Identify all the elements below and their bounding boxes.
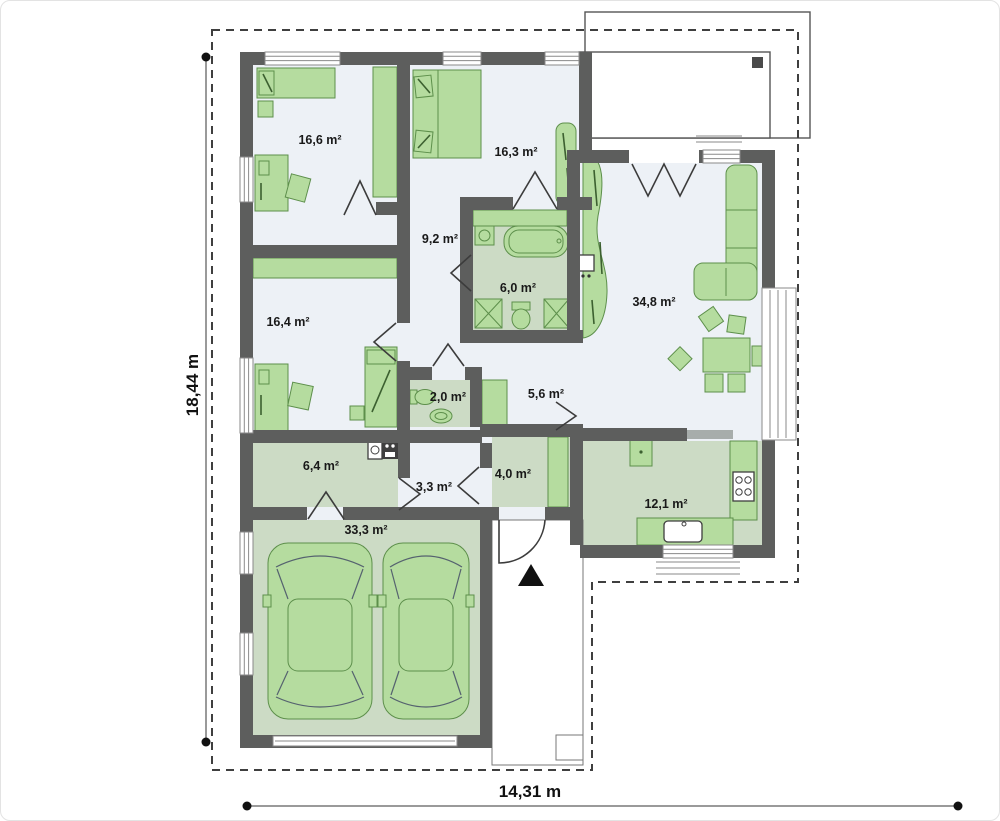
kitchen-sink-icon (664, 521, 702, 542)
car-icon (378, 543, 474, 719)
chair-icon (288, 382, 314, 410)
room-label-bedroom-2: 16,3 m² (494, 145, 537, 159)
room-label-corridor: 3,3 m² (416, 480, 452, 494)
floor-plan-page: 18,44 m 14,31 m (0, 0, 1000, 821)
room-label-entry: 4,0 m² (495, 467, 531, 481)
width-dimension-label: 14,31 m (499, 782, 561, 801)
dimension-bottom: 14,31 m (243, 782, 963, 811)
desk-icon (255, 364, 288, 434)
sink-icon (430, 409, 452, 423)
terrace-door-icon (762, 288, 796, 440)
wardrobe-icon (373, 67, 397, 197)
entrance-walkway (492, 520, 583, 765)
dimension-left: 18,44 m (183, 53, 211, 747)
utility-appliances (368, 441, 398, 459)
garage-cars (263, 543, 474, 719)
window-icon (240, 358, 253, 433)
room-label-wc: 2,0 m² (430, 390, 466, 404)
wardrobe-icon (482, 380, 507, 427)
sink-icon (475, 226, 494, 245)
washer-icon (368, 441, 382, 459)
chimney-icon (752, 57, 763, 68)
room-label-utility: 6,4 m² (303, 459, 339, 473)
room-label-bathroom: 6,0 m² (500, 281, 536, 295)
window-icon (240, 532, 253, 574)
room-label-kitchen: 12,1 m² (644, 497, 687, 511)
window-icon (443, 52, 481, 65)
room-label-hallway: 5,6 m² (528, 387, 564, 401)
hall-closet-icon (473, 210, 567, 226)
window-icon (240, 157, 253, 202)
window-icon (663, 545, 733, 558)
floor-plan: 18,44 m 14,31 m (0, 0, 1000, 821)
garage-door-icon (273, 736, 457, 746)
car-icon (263, 543, 377, 719)
room-label-bedroom-3: 16,4 m² (266, 315, 309, 329)
room-label-hall: 9,2 m² (422, 232, 458, 246)
fireplace-icon (578, 255, 594, 271)
window-icon (545, 52, 579, 65)
room-label-garage: 33,3 m² (344, 523, 387, 537)
window-icon (703, 150, 740, 163)
window-icon (265, 52, 340, 65)
desk-icon (255, 155, 288, 211)
window-icon (240, 633, 253, 675)
room-label-living-room: 34,8 m² (632, 295, 675, 309)
height-dimension-label: 18,44 m (183, 354, 202, 416)
wardrobe-icon (253, 258, 397, 278)
bathtub-icon (504, 226, 568, 257)
cooktop-icon (733, 472, 754, 501)
entry-wardrobe-icon (548, 437, 568, 507)
room-label-bedroom-1: 16,6 m² (298, 133, 341, 147)
